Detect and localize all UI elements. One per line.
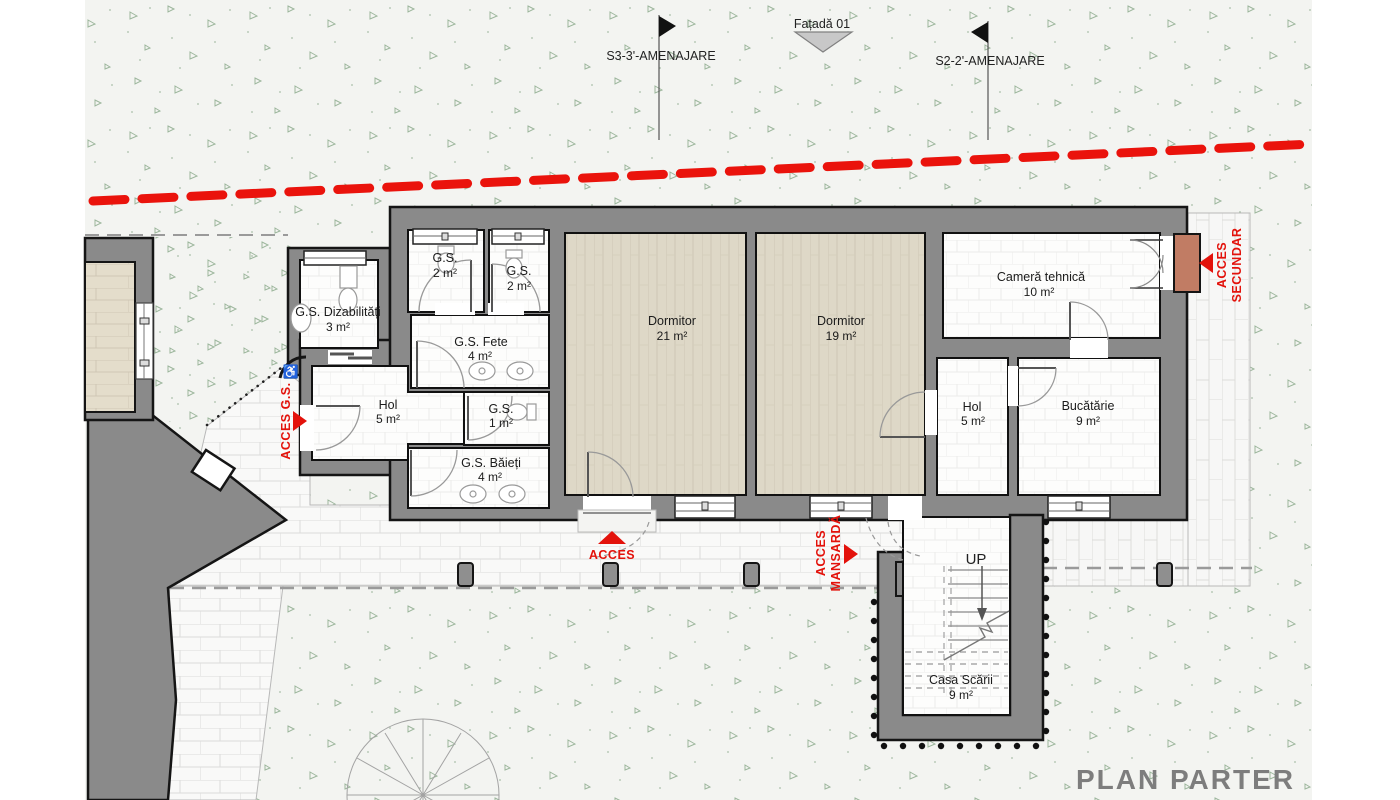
room-label-hol-east: Hol — [963, 400, 982, 414]
acces-mansarda-label-1: ACCES — [814, 530, 828, 576]
room-area-gs-mic: 1 m² — [489, 416, 513, 430]
room-label-dormitor-21: Dormitor — [648, 314, 696, 328]
room-label-dormitor-19: Dormitor — [817, 314, 865, 328]
room-label-gs-baieti: G.S. Băieți — [461, 456, 521, 470]
window-dormitor-21 — [675, 496, 735, 518]
acces-mansarda-label-2: MANSARDĂ — [828, 515, 843, 592]
room-label-gs-dizabilitati: G.S. Dizabilități — [295, 305, 380, 319]
room-area-gs-2: 2 m² — [507, 279, 531, 293]
room-area-bucatarie: 9 m² — [1076, 414, 1100, 428]
floor-plan-page: ♿ — [0, 0, 1400, 800]
section-label-s2: S2-2'-AMENAJARE — [935, 54, 1044, 68]
room-area-gs-1: 2 m² — [433, 266, 457, 280]
acces-secundar-label-1: ACCES — [1215, 242, 1229, 288]
stairs-up-label: UP — [966, 551, 987, 568]
window-gs-1 — [413, 229, 477, 244]
facade-label: Fațadă 01 — [794, 17, 850, 31]
wheelchair-icon: ♿ — [283, 364, 299, 379]
room-label-camera-tehnica: Cameră tehnică — [997, 270, 1085, 284]
room-label-casa-scarii: Casa Scării — [929, 673, 993, 687]
room-label-gs-mic: G.S. — [488, 402, 513, 416]
acces-gs-label: ACCES G.S. — [279, 382, 293, 459]
acces-main-label: ACCES — [589, 548, 635, 562]
window-bucatarie — [1048, 496, 1110, 518]
room-label-gs-2: G.S. — [506, 264, 531, 278]
room-area-hol-east: 5 m² — [961, 414, 985, 428]
section-label-s3: S3-3'-AMENAJARE — [606, 49, 715, 63]
room-label-hol-west: Hol — [379, 398, 398, 412]
annex-floor — [85, 262, 135, 412]
room-label-gs-fete: G.S. Fete — [454, 335, 508, 349]
room-area-gs-baieti: 4 m² — [478, 470, 502, 484]
floor-dormitor-21 — [565, 233, 746, 495]
room-area-casa-scarii: 9 m² — [949, 688, 973, 702]
plan-title: PLAN PARTER — [1076, 764, 1295, 795]
window-gs-2 — [492, 229, 544, 244]
annex-building — [85, 238, 153, 420]
window-gs-dizabilitati — [304, 251, 366, 265]
secondary-entrance-door — [1174, 234, 1200, 292]
room-area-dormitor-21: 21 m² — [657, 329, 688, 343]
floor-plan-canvas: ♿ — [0, 0, 1400, 800]
room-area-gs-fete: 4 m² — [468, 349, 492, 363]
floor-dormitor-19 — [756, 233, 925, 495]
room-area-gs-dizabilitati: 3 m² — [326, 320, 350, 334]
room-label-gs-1: G.S. — [432, 251, 457, 265]
room-area-camera-tehnica: 10 m² — [1024, 285, 1055, 299]
room-area-dormitor-19: 19 m² — [826, 329, 857, 343]
room-area-hol-west: 5 m² — [376, 412, 400, 426]
room-label-bucatarie: Bucătărie — [1062, 399, 1115, 413]
acces-secundar-label-2: SECUNDAR — [1230, 228, 1244, 303]
